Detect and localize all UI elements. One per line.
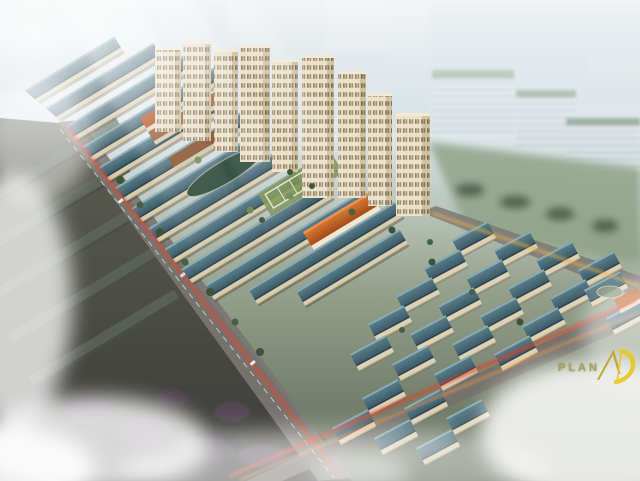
villa-block	[452, 325, 497, 362]
villa-block	[368, 305, 413, 342]
scene-svg	[0, 0, 640, 481]
tower	[368, 93, 392, 206]
villa-block	[350, 335, 395, 372]
villa-block	[410, 315, 455, 352]
aerial-rendering-scene: PLAN	[0, 0, 640, 481]
villa-block	[392, 345, 437, 382]
tower	[396, 113, 430, 216]
